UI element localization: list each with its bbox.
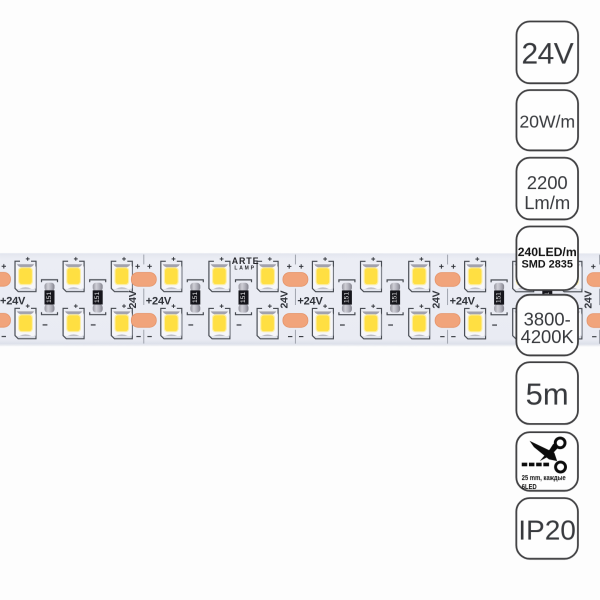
svg-text:240LED/m: 240LED/m	[518, 245, 577, 259]
svg-text:+24V: +24V	[450, 296, 476, 308]
svg-text:24V: 24V	[521, 38, 573, 71]
svg-text:6LED: 6LED	[522, 484, 537, 492]
svg-text:151: 151	[94, 292, 101, 303]
svg-text:+24V: +24V	[0, 295, 26, 307]
svg-text:24V: 24V	[278, 290, 290, 308]
svg-text:20W/m: 20W/m	[519, 111, 575, 131]
svg-text:24V: 24V	[583, 291, 595, 309]
svg-text:5m: 5m	[526, 377, 569, 412]
svg-text:ARTE: ARTE	[232, 256, 260, 266]
svg-text:151: 151	[46, 292, 53, 303]
svg-text:+24V: +24V	[146, 296, 172, 308]
svg-text:151: 151	[392, 292, 399, 303]
svg-text:151: 151	[496, 292, 503, 303]
svg-text:151: 151	[343, 292, 350, 303]
svg-text:LAMP: LAMP	[234, 265, 255, 271]
svg-text:4200K: 4200K	[521, 326, 575, 347]
svg-text:24V: 24V	[127, 290, 139, 308]
svg-text:SMD 2835: SMD 2835	[521, 259, 572, 271]
svg-text:24V: 24V	[431, 290, 443, 308]
svg-text:25 mm, каждые: 25 mm, каждые	[522, 475, 566, 483]
svg-text:151: 151	[192, 292, 199, 303]
svg-text:IP20: IP20	[518, 515, 576, 546]
svg-text:2200: 2200	[527, 172, 568, 193]
svg-text:+24V: +24V	[297, 296, 323, 308]
svg-text:Lm/m: Lm/m	[524, 192, 570, 213]
svg-text:151: 151	[240, 292, 247, 303]
